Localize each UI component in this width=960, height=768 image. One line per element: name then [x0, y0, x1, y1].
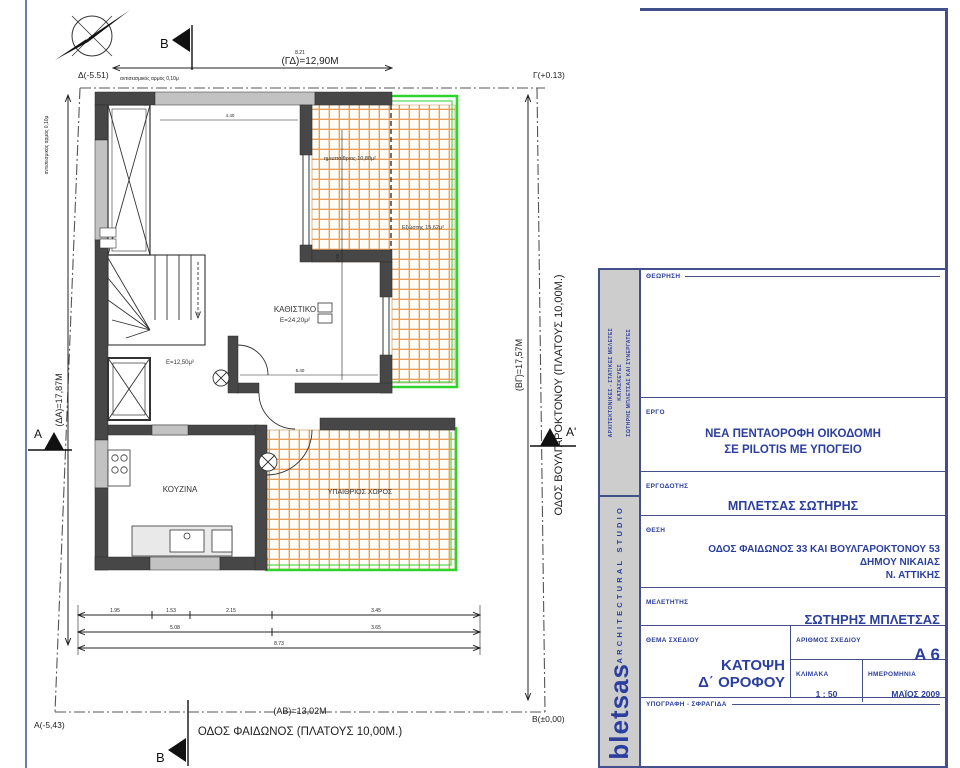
field-meletitis: ΜΕΛΕΤΗΤΗΣ ΣΩΤΗΡΗΣ ΜΠΛΕΤΣΑΣ [641, 588, 945, 626]
sidebar-line-2: ΚΑΤΑΣΚΕΥΕΣ [617, 364, 623, 401]
section-a-left: A [34, 427, 42, 441]
sidebar-line-3: ΣΩΤΗΡΗΣ ΜΠΛΕΤΣΑΣ ΚΑΙ ΣΥΝΕΡΓΑΤΕΣ [626, 329, 632, 437]
sidebar-line-1: ΑΡΧΙΤΕΚΤΟΝΙΚΕΣ - ΣΤΑΤΙΚΕΣ ΜΕΛΕΤΕΣ [608, 328, 614, 437]
imerominia-label: ΗΜΕΡΟΜΗΝΙΑ [868, 671, 916, 678]
section-b-top: B [160, 36, 169, 51]
chain-2b: 3.65 [371, 625, 381, 631]
thesi-value-line3: Ν. ΑΤΤΙΚΗΣ [646, 569, 940, 582]
north-arrow-icon: E [55, 10, 130, 60]
field-thema: ΘΕΜΑ ΣΧΕΔΙΟΥ ΚΑΤΟΨΗ Δ΄ ΟΡΟΦΟΥ [641, 626, 791, 697]
title-block: ΑΡΧΙΤΕΚΤΟΝΙΚΕΣ - ΣΤΑΤΙΚΕΣ ΜΕΛΕΤΕΣ ΚΑΤΑΣΚ… [598, 268, 947, 768]
meletitis-value: ΣΩΤΗΡΗΣ ΜΠΛΕΤΣΑΣ [646, 612, 940, 627]
ergo-value-line2: ΣΕ PILOTIS ΜΕ ΥΠΟΓΕΙΟ [646, 443, 940, 459]
corner-a: Α(-5,43) [34, 720, 65, 730]
field-ypografi: ΥΠΟΓΡΑΦΗ - ΣΦΡΑΓΙΔΑ [641, 698, 945, 766]
field-klimaka: ΚΛΙΜΑΚΑ 1 : 50 [791, 660, 863, 702]
room-label-open-space: ΥΠΑΙΘΡΙΟΣ ΧΩΡΟΣ [328, 489, 393, 496]
field-imerominia: ΗΜΕΡΟΜΗΝΙΑ ΜΑΪΟΣ 2009 [863, 660, 945, 702]
ergodotis-label: ΕΡΓΟΔΟΤΗΣ [646, 483, 688, 490]
sidebar-firm-lines: ΑΡΧΙΤΕΚΤΟΝΙΚΕΣ - ΣΤΑΤΙΚΕΣ ΜΕΛΕΤΕΣ ΚΑΤΑΣΚ… [600, 270, 639, 497]
field-arithmos: ΑΡΙΘΜΟΣ ΣΧΕΔΙΟΥ A 6 [791, 626, 945, 660]
joint-note-top: αντισεισμικός αρμός 0,10μ [120, 75, 179, 82]
chain-1d: 3.45 [371, 608, 381, 614]
theorisi-rule [685, 276, 940, 277]
section-a-right: A' [566, 425, 576, 439]
dim-i2: 4.50 [335, 253, 340, 262]
room-label-living: ΚΑΘΙΣΤΙΚΟ [274, 305, 316, 314]
dim-i1: 4.40 [226, 113, 235, 118]
klimaka-label: ΚΛΙΜΑΚΑ [796, 671, 828, 678]
room-label-semi-open: ημιυπαίθριος 10,80μ² [324, 156, 376, 162]
room-label-hall-area: Ε=12,50μ² [166, 360, 194, 366]
thesi-label: ΘΕΣΗ [646, 527, 665, 534]
dim-top: (ΓΔ)=12,90Μ [281, 56, 338, 67]
brand-logo: bletsas [604, 663, 635, 760]
thesi-value-line2: ΔΗΜΟΥ ΝΙΚΑΙΑΣ [646, 556, 940, 569]
ypografi-rule [732, 704, 940, 705]
elevator [108, 358, 150, 420]
title-block-sidebar: ΑΡΧΙΤΕΚΤΟΝΙΚΕΣ - ΣΤΑΤΙΚΕΣ ΜΕΛΕΤΕΣ ΚΑΤΑΣΚ… [600, 270, 641, 766]
chain-2a: 5.08 [170, 625, 180, 631]
room-label-balcony: Εξώστης 15,62μ² [402, 224, 444, 231]
ergo-value-line1: ΝΕΑ ΠΕΝΤΑΟΡΟΦΗ ΟΙΚΟΔΟΜΗ [646, 427, 940, 443]
arithmos-label: ΑΡΙΘΜΟΣ ΣΧΕΔΙΟΥ [796, 637, 861, 644]
thema-value-line2: Δ΄ ΟΡΟΦΟΥ [646, 674, 785, 691]
ergodotis-value: ΜΠΛΕΤΣΑΣ ΣΩΤΗΡΗΣ [646, 499, 940, 513]
joint-note-left: αντισεισμικός αρμός 0,10μ [43, 115, 50, 174]
field-ergodotis: ΕΡΓΟΔΟΤΗΣ ΜΠΛΕΤΣΑΣ ΣΩΤΗΡΗΣ [641, 472, 945, 516]
thema-value-line1: ΚΑΤΟΨΗ [646, 657, 785, 674]
section-b-bottom: B [156, 750, 165, 765]
title-block-main: ΘΕΩΡΗΣΗ ΕΡΓΟ ΝΕΑ ΠΕΝΤΑΟΡΟΦΗ ΟΙΚΟΔΟΜΗ ΣΕ … [641, 270, 945, 766]
dim-top-small: 8.21 [295, 50, 305, 56]
sheet-border-top-right [640, 8, 948, 11]
chain-1a: 1.95 [110, 608, 120, 614]
dim-bottom: (ΑΒ)=13,02Μ [273, 706, 326, 716]
balcony-tiles-lower [267, 430, 455, 570]
street-bottom: ΟΔΟΣ ΦΑΙΔΩΝΟΣ (ΠΛΑΤΟΥΣ 10,00Μ.) [198, 726, 402, 738]
field-theorisi: ΘΕΩΡΗΣΗ [641, 270, 945, 398]
room-label-living-area: Ε=24,20μ² [280, 317, 311, 324]
drawing-sheet: ΚΑΘΙΣΤΙΚΟ Ε=24,20μ² ΚΟΥΖΙΝΑ Ε=12,50μ² ΥΠ… [0, 0, 960, 768]
thesi-value-line1: ΟΔΟΣ ΦΑΙΔΩΝΟΣ 33 ΚΑΙ ΒΟΥΛΓΑΡΟΚΤΟΝΟΥ 53 [646, 543, 940, 556]
sidebar-brand-area: ARCHITECTURAL STUDIO bletsas [600, 497, 639, 766]
street-right: ΟΔΟΣ ΒΟΥΛΓΑΡΟΚΤΟΝΟΥ (ΠΛΑΤΟΥΣ 10,00Μ.) [553, 274, 565, 515]
field-ergo: ΕΡΓΟ ΝΕΑ ΠΕΝΤΑΟΡΟΦΗ ΟΙΚΟΔΟΜΗ ΣΕ PILOTIS … [641, 398, 945, 472]
floor-plan: ΚΑΘΙΣΤΙΚΟ Ε=24,20μ² ΚΟΥΖΙΝΑ Ε=12,50μ² ΥΠ… [0, 0, 600, 768]
chain-3a: 8.73 [274, 641, 284, 647]
dim-right: (ΒΓ)=17,57Μ [514, 339, 524, 391]
lightwell [100, 105, 150, 255]
chain-1b: 1.53 [166, 608, 176, 614]
thema-label: ΘΕΜΑ ΣΧΕΔΙΟΥ [646, 637, 699, 644]
sidebar-studio-label: ARCHITECTURAL STUDIO [615, 505, 624, 663]
theorisi-label: ΘΕΩΡΗΣΗ [646, 273, 680, 280]
chain-1c: 2.15 [226, 608, 236, 614]
field-split-row: ΘΕΜΑ ΣΧΕΔΙΟΥ ΚΑΤΟΨΗ Δ΄ ΟΡΟΦΟΥ ΑΡΙΘΜΟΣ ΣΧ… [641, 626, 945, 698]
dim-left: (ΔΑ)=17,87Μ [54, 373, 64, 426]
ypografi-label: ΥΠΟΓΡΑΦΗ - ΣΦΡΑΓΙΔΑ [646, 701, 727, 708]
staircase [108, 255, 205, 345]
dim-i3: 5.40 [296, 368, 305, 373]
meletitis-label: ΜΕΛΕΤΗΤΗΣ [646, 599, 688, 606]
ergo-label: ΕΡΓΟ [646, 409, 665, 416]
room-label-kitchen: ΚΟΥΖΙΝΑ [163, 485, 198, 494]
corner-d: Δ(-5.51) [78, 70, 109, 80]
field-thesi: ΘΕΣΗ ΟΔΟΣ ΦΑΙΔΩΝΟΣ 33 ΚΑΙ ΒΟΥΛΓΑΡΟΚΤΟΝΟΥ… [641, 516, 945, 588]
corner-b: Β(±0,00) [532, 714, 565, 724]
corner-g: Γ(+0.13) [533, 70, 565, 80]
